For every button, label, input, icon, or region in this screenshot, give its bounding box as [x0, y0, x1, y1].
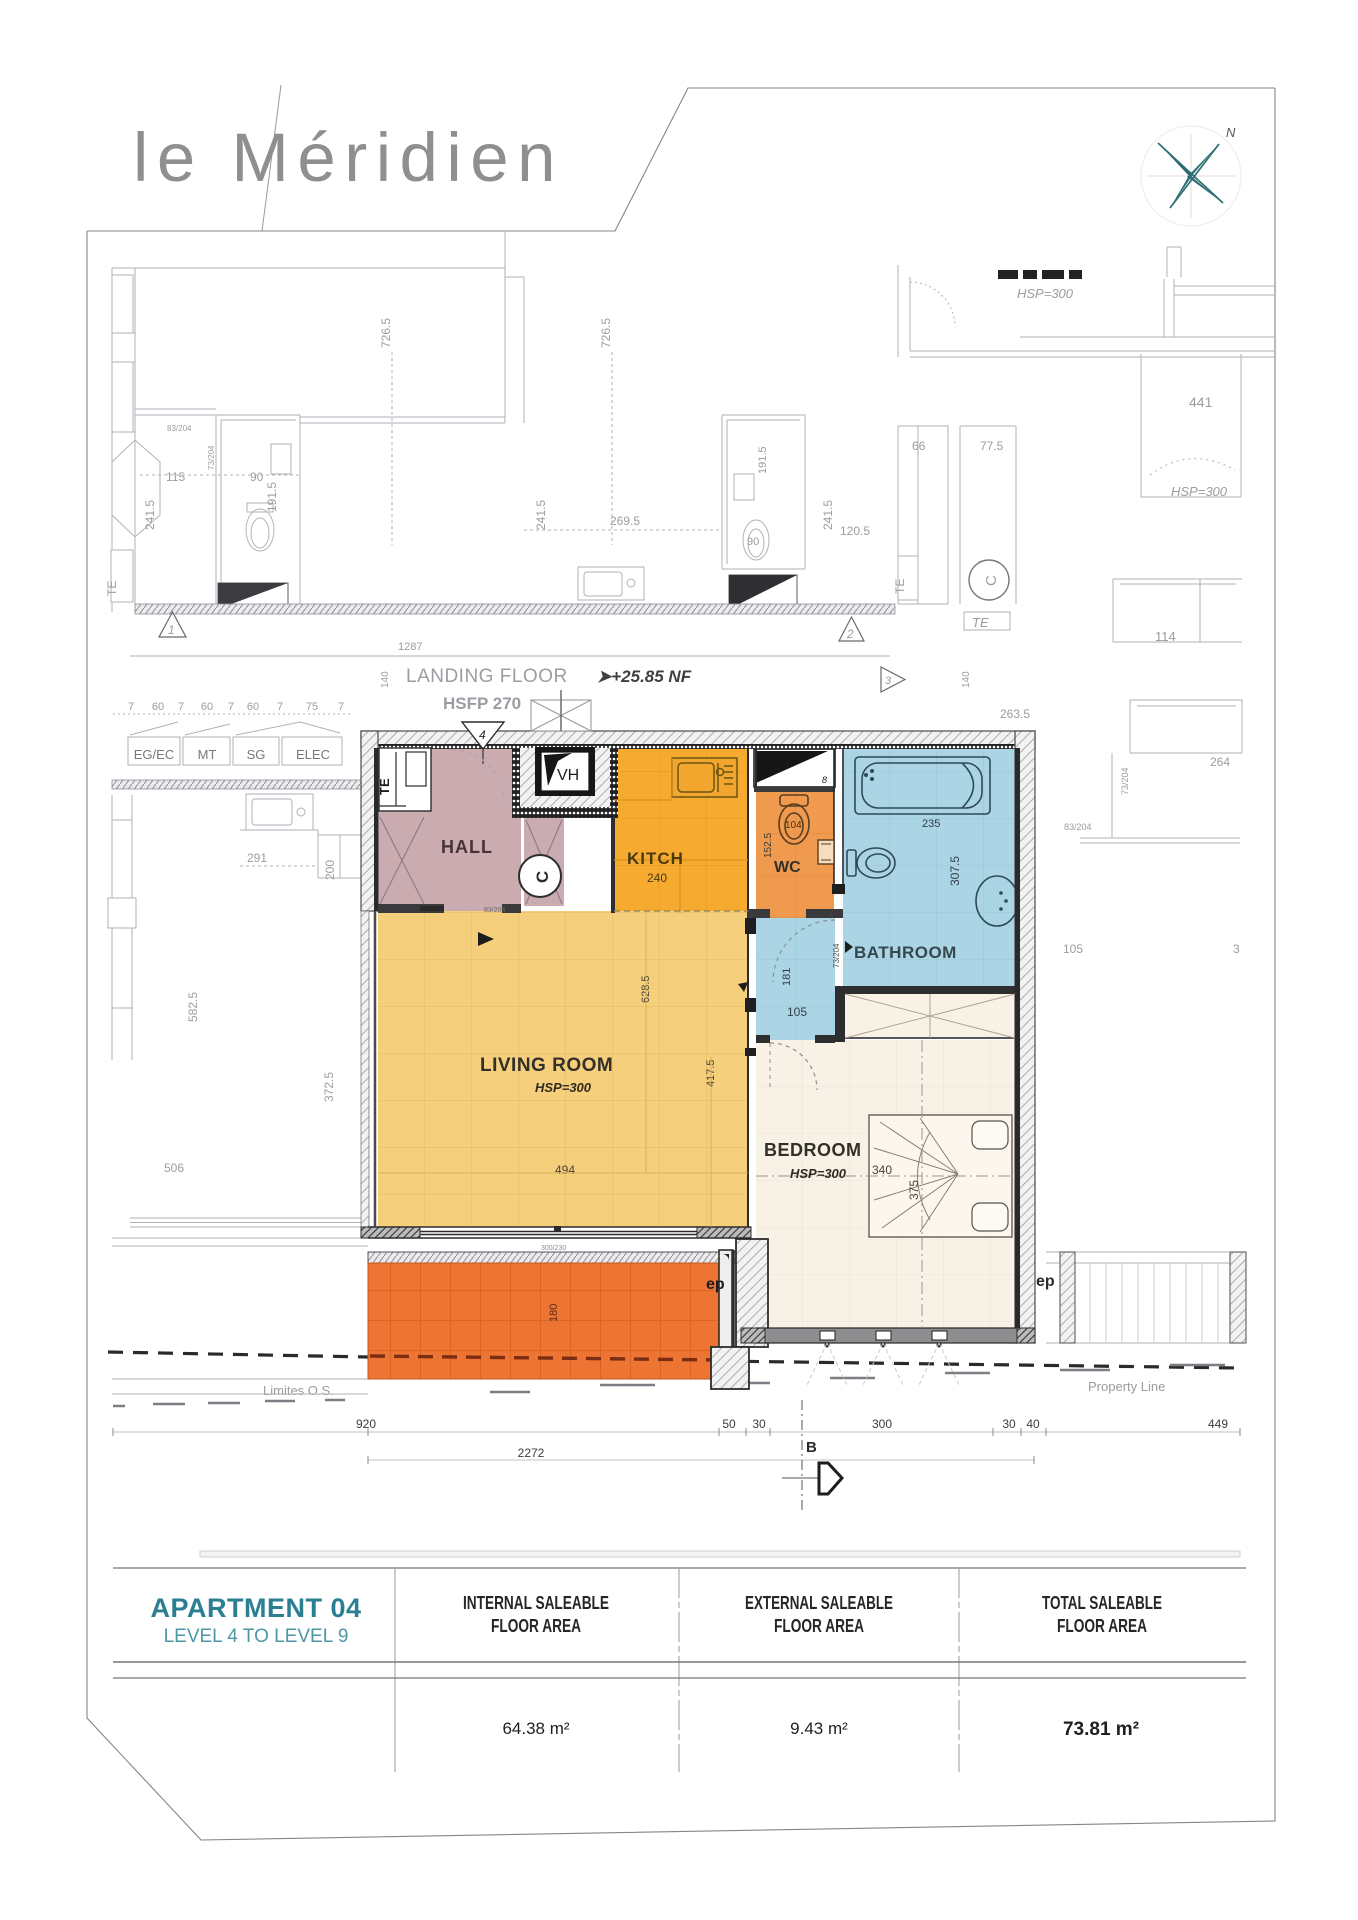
svg-text:263.5: 263.5 — [1000, 707, 1030, 721]
svg-text:726.5: 726.5 — [599, 318, 613, 348]
svg-text:LANDING FLOOR: LANDING FLOOR — [406, 666, 568, 687]
svg-text:105: 105 — [787, 1005, 807, 1019]
svg-text:2: 2 — [846, 627, 854, 641]
svg-text:HSP=300: HSP=300 — [790, 1166, 847, 1181]
svg-text:180: 180 — [548, 1304, 560, 1322]
svg-text:104: 104 — [785, 820, 802, 831]
svg-text:120.5: 120.5 — [840, 524, 870, 538]
svg-text:C: C — [983, 575, 1000, 586]
svg-text:920: 920 — [356, 1417, 376, 1431]
svg-text:340: 340 — [872, 1163, 892, 1177]
svg-text:60: 60 — [201, 701, 213, 713]
svg-text:SG: SG — [247, 747, 266, 762]
svg-text:LIVING ROOM: LIVING ROOM — [480, 1055, 613, 1076]
svg-text:50: 50 — [722, 1417, 736, 1431]
svg-text:64.38 m²: 64.38 m² — [502, 1719, 569, 1738]
svg-text:EG/EC: EG/EC — [134, 747, 174, 762]
svg-text:C: C — [533, 871, 552, 883]
svg-text:73/204: 73/204 — [1120, 767, 1130, 795]
svg-text:LEVEL 4 TO LEVEL 9: LEVEL 4 TO LEVEL 9 — [164, 1626, 349, 1647]
svg-text:372.5: 372.5 — [322, 1072, 336, 1102]
svg-text:726.5: 726.5 — [379, 318, 393, 348]
svg-text:30: 30 — [752, 1417, 766, 1431]
svg-text:HSP=300: HSP=300 — [1017, 286, 1074, 301]
svg-text:TE: TE — [377, 778, 392, 795]
svg-text:7: 7 — [338, 701, 344, 713]
svg-text:FLOOR AREA: FLOOR AREA — [1057, 1616, 1147, 1636]
svg-text:HSP=300: HSP=300 — [1171, 484, 1228, 499]
svg-text:307.5: 307.5 — [948, 856, 962, 886]
svg-text:73/204: 73/204 — [832, 943, 841, 968]
svg-text:APARTMENT 04: APARTMENT 04 — [150, 1593, 361, 1623]
svg-text:73.81 m²: 73.81 m² — [1063, 1719, 1139, 1740]
svg-text:60: 60 — [247, 701, 259, 713]
svg-text:240: 240 — [647, 871, 667, 885]
svg-text:TE: TE — [893, 579, 907, 594]
svg-text:TE: TE — [105, 581, 119, 596]
svg-text:83/204: 83/204 — [167, 424, 192, 433]
svg-text:241.5: 241.5 — [143, 500, 157, 530]
svg-text:235: 235 — [922, 818, 940, 830]
svg-text:1287: 1287 — [398, 641, 422, 653]
svg-text:ELEC: ELEC — [296, 747, 330, 762]
svg-text:115: 115 — [166, 470, 185, 484]
svg-text:140: 140 — [380, 671, 391, 688]
svg-text:241.5: 241.5 — [534, 500, 548, 530]
svg-text:Limites O.S.: Limites O.S. — [263, 1383, 334, 1398]
svg-text:200: 200 — [323, 860, 337, 880]
svg-text:HSP=300: HSP=300 — [535, 1080, 592, 1095]
svg-text:241.5: 241.5 — [821, 500, 835, 530]
svg-text:BATHROOM: BATHROOM — [854, 943, 957, 962]
svg-text:152.5: 152.5 — [763, 833, 774, 858]
svg-text:WC: WC — [774, 859, 801, 876]
svg-text:83/204: 83/204 — [1064, 822, 1092, 832]
svg-text:7: 7 — [277, 701, 283, 713]
svg-text:114: 114 — [1155, 629, 1176, 644]
svg-text:9.43 m²: 9.43 m² — [790, 1719, 848, 1738]
svg-text:HALL: HALL — [441, 837, 493, 857]
svg-text:Property Line: Property Line — [1088, 1379, 1165, 1394]
svg-text:181: 181 — [781, 968, 793, 986]
svg-text:60: 60 — [152, 701, 164, 713]
svg-text:8: 8 — [822, 775, 827, 785]
svg-text:449: 449 — [1208, 1417, 1228, 1431]
svg-text:7: 7 — [128, 701, 134, 713]
svg-text:73/204: 73/204 — [207, 445, 216, 470]
svg-text:HSFP 270: HSFP 270 — [443, 694, 521, 713]
svg-text:140: 140 — [961, 671, 972, 688]
svg-text:300/230: 300/230 — [541, 1245, 566, 1252]
svg-text:FLOOR AREA: FLOOR AREA — [774, 1616, 864, 1636]
svg-text:FLOOR AREA: FLOOR AREA — [491, 1616, 581, 1636]
svg-text:40: 40 — [1026, 1417, 1040, 1431]
svg-text:MT: MT — [198, 747, 217, 762]
svg-text:BEDROOM: BEDROOM — [764, 1140, 862, 1160]
svg-text:1: 1 — [168, 623, 175, 637]
svg-text:191.5: 191.5 — [265, 482, 279, 512]
svg-text:77.5: 77.5 — [980, 439, 1004, 453]
svg-text:3: 3 — [1233, 942, 1240, 956]
svg-text:3: 3 — [885, 675, 892, 687]
svg-text:N: N — [1226, 125, 1236, 140]
svg-text:TOTAL SALEABLE: TOTAL SALEABLE — [1042, 1593, 1162, 1613]
svg-text:264: 264 — [1210, 755, 1230, 769]
svg-text:B: B — [806, 1439, 817, 1456]
svg-text:291: 291 — [247, 851, 267, 865]
svg-text:4: 4 — [479, 728, 486, 742]
svg-text:7: 7 — [228, 701, 234, 713]
svg-text:TE: TE — [972, 615, 989, 630]
svg-text:506: 506 — [164, 1161, 184, 1175]
svg-text:ep: ep — [706, 1276, 725, 1293]
svg-text:➤+25.85 NF: ➤+25.85 NF — [597, 667, 692, 686]
svg-text:90: 90 — [747, 536, 759, 548]
svg-text:2272: 2272 — [518, 1446, 545, 1460]
svg-text:VH: VH — [557, 767, 579, 784]
svg-text:375: 375 — [907, 1180, 921, 1200]
svg-text:30: 30 — [1002, 1417, 1016, 1431]
svg-text:105: 105 — [1063, 942, 1083, 956]
svg-text:INTERNAL SALEABLE: INTERNAL SALEABLE — [463, 1593, 609, 1613]
svg-text:EXTERNAL SALEABLE: EXTERNAL SALEABLE — [745, 1593, 893, 1613]
svg-text:300: 300 — [872, 1417, 892, 1431]
svg-text:90: 90 — [250, 470, 264, 484]
svg-text:ep: ep — [1036, 1273, 1055, 1290]
svg-text:7: 7 — [178, 701, 184, 713]
svg-text:441: 441 — [1189, 394, 1213, 410]
svg-text:le Méridien: le Méridien — [133, 119, 564, 196]
svg-text:269.5: 269.5 — [610, 514, 640, 528]
svg-text:83/204: 83/204 — [484, 907, 506, 914]
svg-text:582.5: 582.5 — [186, 992, 200, 1022]
svg-text:KITCH: KITCH — [627, 849, 684, 868]
svg-text:191.5: 191.5 — [757, 446, 769, 474]
svg-text:66: 66 — [912, 439, 926, 453]
svg-text:494: 494 — [555, 1163, 575, 1177]
svg-text:75: 75 — [306, 701, 318, 713]
